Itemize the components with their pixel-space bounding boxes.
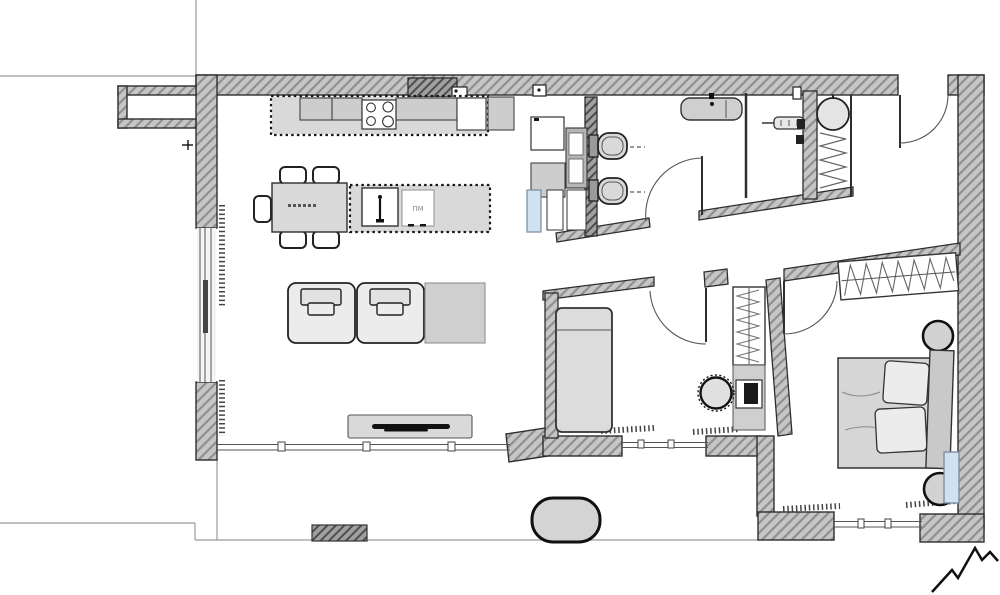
wall-fixture-icon	[797, 119, 805, 129]
pillow	[883, 361, 930, 406]
bedroom	[838, 253, 959, 505]
dining-chair	[313, 231, 339, 248]
outdoor-pouf	[532, 498, 600, 542]
bathroom	[589, 93, 742, 204]
door-swing-arc	[646, 158, 702, 221]
dining-chair	[280, 231, 306, 248]
doors	[646, 95, 948, 344]
appliance-box	[457, 98, 486, 130]
switch-dot-icon	[454, 89, 457, 92]
boiler	[817, 98, 849, 130]
monitor-icon	[744, 383, 758, 404]
washer-control-icon	[534, 118, 539, 121]
glass-panel-blue	[527, 190, 541, 232]
floor-plan-canvas: ПМ	[0, 0, 1000, 595]
armchair-pad	[377, 303, 403, 315]
wall-south-middle-right	[706, 436, 760, 456]
dining-table	[272, 183, 347, 232]
wall-west-lower	[196, 382, 217, 460]
window-rod	[203, 280, 208, 333]
wall-niche-dark	[408, 78, 457, 97]
wall-middleroom-east	[766, 278, 792, 436]
bathroom-door	[646, 156, 702, 221]
desk-chair	[701, 378, 732, 409]
wall-south-middle-left	[543, 436, 622, 456]
outdoor-spigot-icon	[182, 140, 193, 150]
wall-right	[958, 75, 984, 530]
shower-room	[762, 117, 805, 144]
armchair-pad	[308, 303, 334, 315]
curtain-squiggle	[783, 506, 840, 509]
single-bed	[556, 308, 612, 432]
switch-dot-icon	[537, 88, 540, 91]
door-swing-arc	[900, 95, 948, 143]
wall-south-step	[506, 428, 548, 462]
wall-fixture-icon	[796, 135, 804, 144]
island-tick	[420, 224, 426, 227]
shaft-slot	[569, 133, 583, 155]
kitchen-island: ПМ	[350, 185, 490, 232]
entrance-door	[900, 95, 948, 148]
washing-machine	[531, 117, 564, 150]
upper-cabinet	[396, 98, 457, 120]
headboard	[926, 350, 954, 469]
floor-plan-svg: ПМ	[0, 0, 1000, 595]
toilet-tank	[589, 135, 598, 157]
window-mullion	[448, 442, 455, 451]
faucet-icon	[709, 93, 714, 99]
tv-icon	[372, 424, 450, 429]
window-mullion	[638, 440, 644, 448]
shaft-slot	[569, 159, 583, 183]
dining-area	[254, 167, 347, 248]
appliance-box	[488, 97, 514, 130]
terrace	[312, 498, 600, 542]
paving-step	[312, 525, 367, 541]
door-swing-arc	[784, 281, 837, 334]
wall-door-stub	[704, 269, 728, 287]
wall-west-upper	[196, 75, 217, 228]
side-table	[425, 283, 485, 343]
wall-bedroom-west	[757, 436, 774, 516]
middle-room	[556, 287, 765, 432]
dining-chair	[280, 167, 306, 184]
window-mullion	[885, 519, 891, 528]
tv-icon	[384, 429, 428, 432]
upper-cabinet	[300, 98, 332, 120]
wall-switch-box	[793, 87, 801, 99]
cooktop-body	[362, 100, 396, 129]
wall-bedroom-south-left	[758, 512, 834, 540]
dining-chair	[313, 167, 339, 184]
wall-corridor-north-b	[699, 187, 853, 220]
dining-chair	[254, 196, 271, 222]
dishwasher-label: ПМ	[412, 205, 423, 213]
pillow	[875, 407, 927, 454]
window-mullion	[278, 442, 285, 451]
window-mullion	[668, 440, 674, 448]
north-mark-icon	[932, 548, 998, 592]
porch-wall-top	[118, 86, 196, 95]
island-tick	[408, 224, 414, 227]
bedroom-door	[784, 281, 837, 334]
cabinet-box	[547, 190, 563, 230]
vanity-sink	[681, 98, 742, 120]
toilet-tank	[589, 180, 598, 201]
window-mullion	[858, 519, 864, 528]
cabinet-box	[567, 190, 586, 230]
tech-closet	[817, 95, 849, 188]
wall-bedroom-south-right	[920, 514, 984, 542]
faucet-icon	[710, 102, 714, 106]
heating-coil-icon	[820, 133, 846, 188]
door-swing-arc	[650, 291, 706, 344]
wall-hung-toilet	[589, 133, 645, 159]
window-mullion	[363, 442, 370, 451]
cooktop	[362, 100, 396, 129]
ac-radiator-blue	[944, 452, 959, 503]
wall-middleroom-north	[543, 277, 654, 300]
wall-hung-toilet	[589, 178, 645, 204]
porch-wall-bottom	[118, 119, 196, 128]
upper-cabinet	[332, 98, 362, 120]
wall-closet-west	[803, 91, 817, 199]
nightstand	[923, 321, 953, 351]
living-room	[288, 283, 485, 438]
middle-room-door	[650, 288, 706, 344]
